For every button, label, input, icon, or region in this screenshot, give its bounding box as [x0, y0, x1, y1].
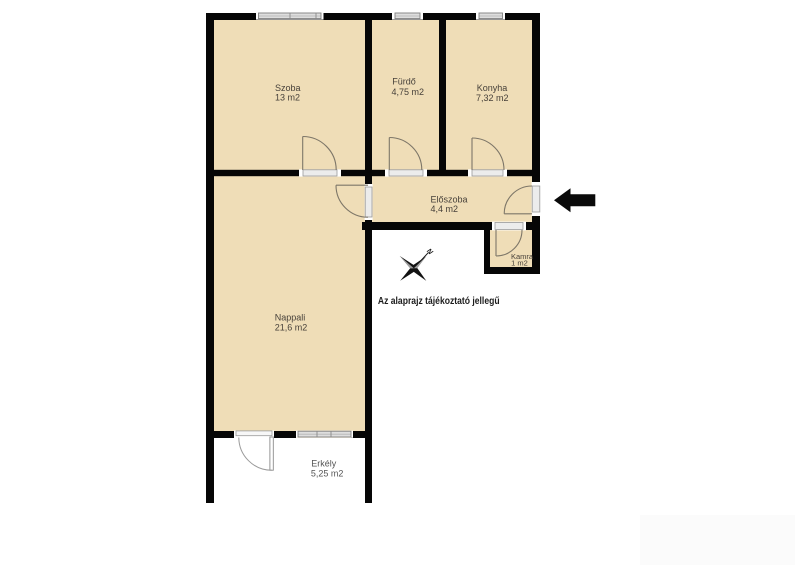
svg-text:Erkély: Erkély	[311, 459, 337, 469]
svg-text:5,25 m2: 5,25 m2	[311, 468, 344, 478]
svg-text:Az alaprajz tájékoztató jelleg: Az alaprajz tájékoztató jellegű	[378, 296, 500, 307]
svg-text:4,4 m2: 4,4 m2	[430, 204, 458, 214]
svg-text:Előszoba: Előszoba	[430, 195, 467, 205]
svg-text:4,75 m2: 4,75 m2	[392, 87, 425, 97]
svg-text:1 m2: 1 m2	[511, 259, 528, 268]
svg-text:Szoba: Szoba	[275, 83, 301, 93]
svg-text:13 m2: 13 m2	[275, 93, 300, 103]
svg-text:Nappali: Nappali	[275, 312, 306, 322]
svg-text:Fürdő: Fürdő	[392, 77, 416, 87]
svg-text:7,32 m2: 7,32 m2	[476, 93, 509, 103]
svg-text:Konyha: Konyha	[477, 83, 508, 93]
svg-text:21,6 m2: 21,6 m2	[275, 323, 308, 333]
